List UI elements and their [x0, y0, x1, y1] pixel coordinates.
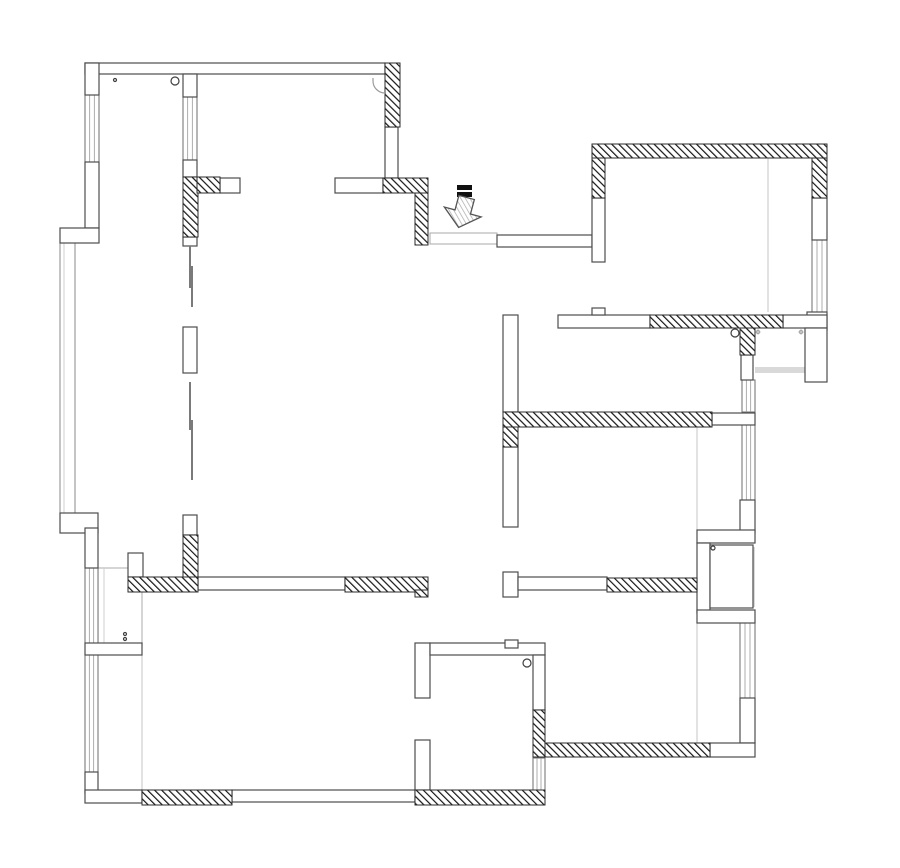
- wall-hatched: [545, 743, 710, 757]
- wall-hatched: [812, 158, 827, 198]
- wall-plain: [198, 577, 345, 590]
- wall-plain: [183, 74, 197, 97]
- wall-plain: [812, 198, 827, 240]
- circle-symbol: [731, 329, 739, 337]
- wall-plain: [183, 237, 197, 246]
- wall-hatched: [650, 315, 783, 328]
- wall-plain: [85, 790, 142, 803]
- wall-plain: [183, 160, 197, 177]
- wall-hatched: [142, 790, 232, 805]
- wall-hatched: [197, 177, 220, 193]
- entry-threshold: [430, 233, 497, 244]
- wall-plain: [558, 315, 650, 328]
- wall-hatched: [607, 578, 697, 592]
- wall-plain: [697, 543, 710, 613]
- window: [742, 425, 755, 500]
- wall-hatched: [533, 710, 545, 757]
- wall-hatched: [415, 193, 428, 245]
- wall-plain: [385, 127, 398, 178]
- window: [740, 623, 755, 698]
- wall-plain: [697, 530, 755, 543]
- floor-plan-canvas: [0, 0, 900, 868]
- windows-layer: [60, 95, 827, 790]
- circle-symbol: [711, 546, 715, 550]
- entrance-arrow-icon: [440, 193, 485, 233]
- hatched-walls-layer: [128, 63, 827, 805]
- wall-plain: [85, 63, 99, 95]
- wall-plain: [415, 643, 430, 698]
- wall-plain: [503, 572, 518, 597]
- wall-plain: [183, 327, 197, 373]
- wall-plain: [60, 228, 99, 243]
- wall-hatched: [415, 590, 428, 597]
- gray-fill-mark: [755, 367, 805, 373]
- wall-plain: [710, 545, 753, 608]
- wall-hatched: [128, 577, 198, 592]
- window: [85, 95, 99, 162]
- window: [85, 568, 98, 643]
- sliding-door-leaf: [189, 382, 191, 430]
- wall-plain: [85, 162, 99, 228]
- wall-hatched: [740, 328, 755, 355]
- circle-symbol: [124, 633, 127, 636]
- window: [533, 758, 545, 790]
- wall-hatched: [503, 412, 712, 427]
- floor-plan-svg: [0, 0, 900, 868]
- window: [85, 655, 98, 772]
- sliding-door-leaf: [191, 266, 193, 307]
- wall-plain: [741, 355, 753, 380]
- window: [183, 97, 197, 160]
- sliding-door-leaf: [191, 420, 193, 480]
- wall-plain: [533, 655, 545, 710]
- wall-plain: [232, 790, 415, 802]
- wall-hatched: [385, 63, 400, 127]
- wall-plain: [128, 553, 143, 577]
- wall-plain: [430, 643, 545, 655]
- white-walls-layer: [60, 63, 827, 803]
- wall-plain: [712, 413, 755, 425]
- wall-plain: [592, 308, 605, 315]
- wall-plain: [415, 740, 430, 790]
- circle-symbol: [124, 638, 127, 641]
- window: [812, 240, 827, 312]
- wall-plain: [505, 640, 518, 648]
- sliding-door-leaf: [189, 246, 191, 288]
- circle-symbol: [171, 77, 179, 85]
- entrance-bar-icon: [457, 185, 472, 190]
- wall-hatched: [592, 144, 827, 158]
- wall-plain: [710, 743, 755, 757]
- corner-arc-detail: [373, 78, 385, 93]
- wall-hatched: [183, 177, 198, 237]
- wall-plain: [783, 315, 827, 328]
- wall-plain: [85, 643, 142, 655]
- wall-hatched: [415, 790, 545, 805]
- wall-hatched: [383, 178, 428, 193]
- balcony-rail: [60, 243, 75, 513]
- wall-plain: [592, 198, 605, 262]
- faint-lines-layer: [98, 158, 805, 790]
- window: [742, 380, 755, 412]
- wall-plain: [497, 235, 592, 247]
- wall-plain: [740, 698, 755, 743]
- wall-hatched: [183, 535, 198, 577]
- wall-plain: [183, 515, 197, 535]
- wall-plain: [220, 178, 240, 193]
- circle-symbol: [523, 659, 531, 667]
- wall-plain: [335, 178, 383, 193]
- wall-plain: [697, 610, 755, 623]
- wall-plain: [740, 500, 755, 533]
- wall-plain: [85, 528, 98, 568]
- wall-plain: [85, 63, 385, 74]
- wall-plain: [805, 328, 827, 382]
- wall-plain: [503, 315, 518, 412]
- circle-symbol: [114, 79, 117, 82]
- wall-plain: [503, 447, 518, 527]
- wall-hatched: [503, 427, 518, 447]
- wall-plain: [518, 577, 607, 590]
- wall-hatched: [592, 158, 605, 198]
